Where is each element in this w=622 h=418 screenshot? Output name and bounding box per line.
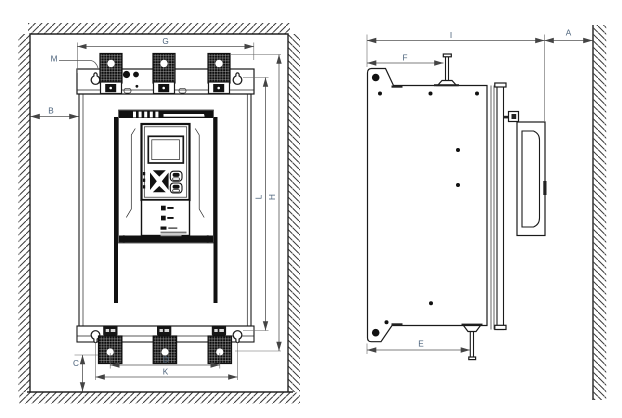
terminal-block — [208, 54, 230, 94]
side-profile — [368, 69, 488, 342]
dimension-L: L — [243, 78, 269, 331]
dimension-B: B — [31, 107, 79, 117]
brand-mark — [161, 227, 167, 230]
dim-label-L: L — [255, 194, 264, 199]
dim-label-B: B — [48, 107, 54, 116]
dimension-D: D — [110, 353, 220, 369]
status-led — [143, 172, 145, 175]
front-view: G M B L H — [19, 23, 301, 404]
keypad — [142, 124, 190, 236]
input-terminals — [100, 54, 230, 94]
dim-label-M: M — [51, 54, 58, 63]
dim-label-H: H — [268, 194, 277, 200]
dimension-A: A — [545, 29, 593, 41]
dim-label-G: G — [162, 37, 168, 46]
technical-drawing-page: G M B L H — [0, 0, 622, 418]
dim-label-K: K — [163, 368, 169, 377]
status-led — [143, 185, 145, 188]
terminal-stud-top — [434, 54, 459, 86]
terminal-block — [100, 54, 122, 94]
wall-hatch-side — [594, 25, 607, 400]
dim-label-I: I — [450, 31, 452, 40]
dimension-H: H — [231, 55, 281, 352]
keypad-bump-side — [517, 122, 547, 236]
front-plate-edge — [491, 83, 506, 330]
dimension-F: F — [367, 53, 444, 63]
cover-trim-right — [214, 117, 218, 303]
mounting-dimensions-diagram: G M B L H — [0, 0, 622, 418]
cover-screw — [120, 111, 127, 118]
keyhole-slot-bottom-right — [233, 331, 242, 343]
status-led — [143, 179, 145, 182]
wall-hatch-right — [289, 34, 301, 392]
dim-label-D: D — [163, 356, 169, 365]
cover-screw — [204, 111, 211, 118]
dimension-C: C — [73, 355, 98, 392]
terminal-block — [153, 54, 175, 94]
wall-hatch-top — [28, 23, 290, 34]
dim-label-A: A — [566, 29, 572, 38]
wall-side — [593, 25, 606, 400]
cover-latch — [504, 112, 519, 122]
wall-hatch-floor — [19, 393, 300, 404]
display-screen — [148, 136, 183, 163]
dim-label-F: F — [402, 53, 407, 62]
side-view: I A F E — [367, 25, 606, 400]
starter-side — [368, 54, 547, 360]
cover-bottom-bar — [119, 236, 213, 243]
dim-label-C: C — [73, 359, 79, 368]
wall-hatch-left — [19, 34, 31, 392]
dimension-E: E — [367, 340, 470, 355]
cover-screw — [204, 235, 211, 242]
terminal-stud-bottom — [462, 324, 483, 360]
cover-trim-left — [114, 117, 118, 303]
dim-label-E: E — [418, 340, 424, 349]
starter-front — [77, 54, 254, 364]
dimension-M: M — [51, 54, 98, 68]
cover-screw — [120, 235, 127, 242]
